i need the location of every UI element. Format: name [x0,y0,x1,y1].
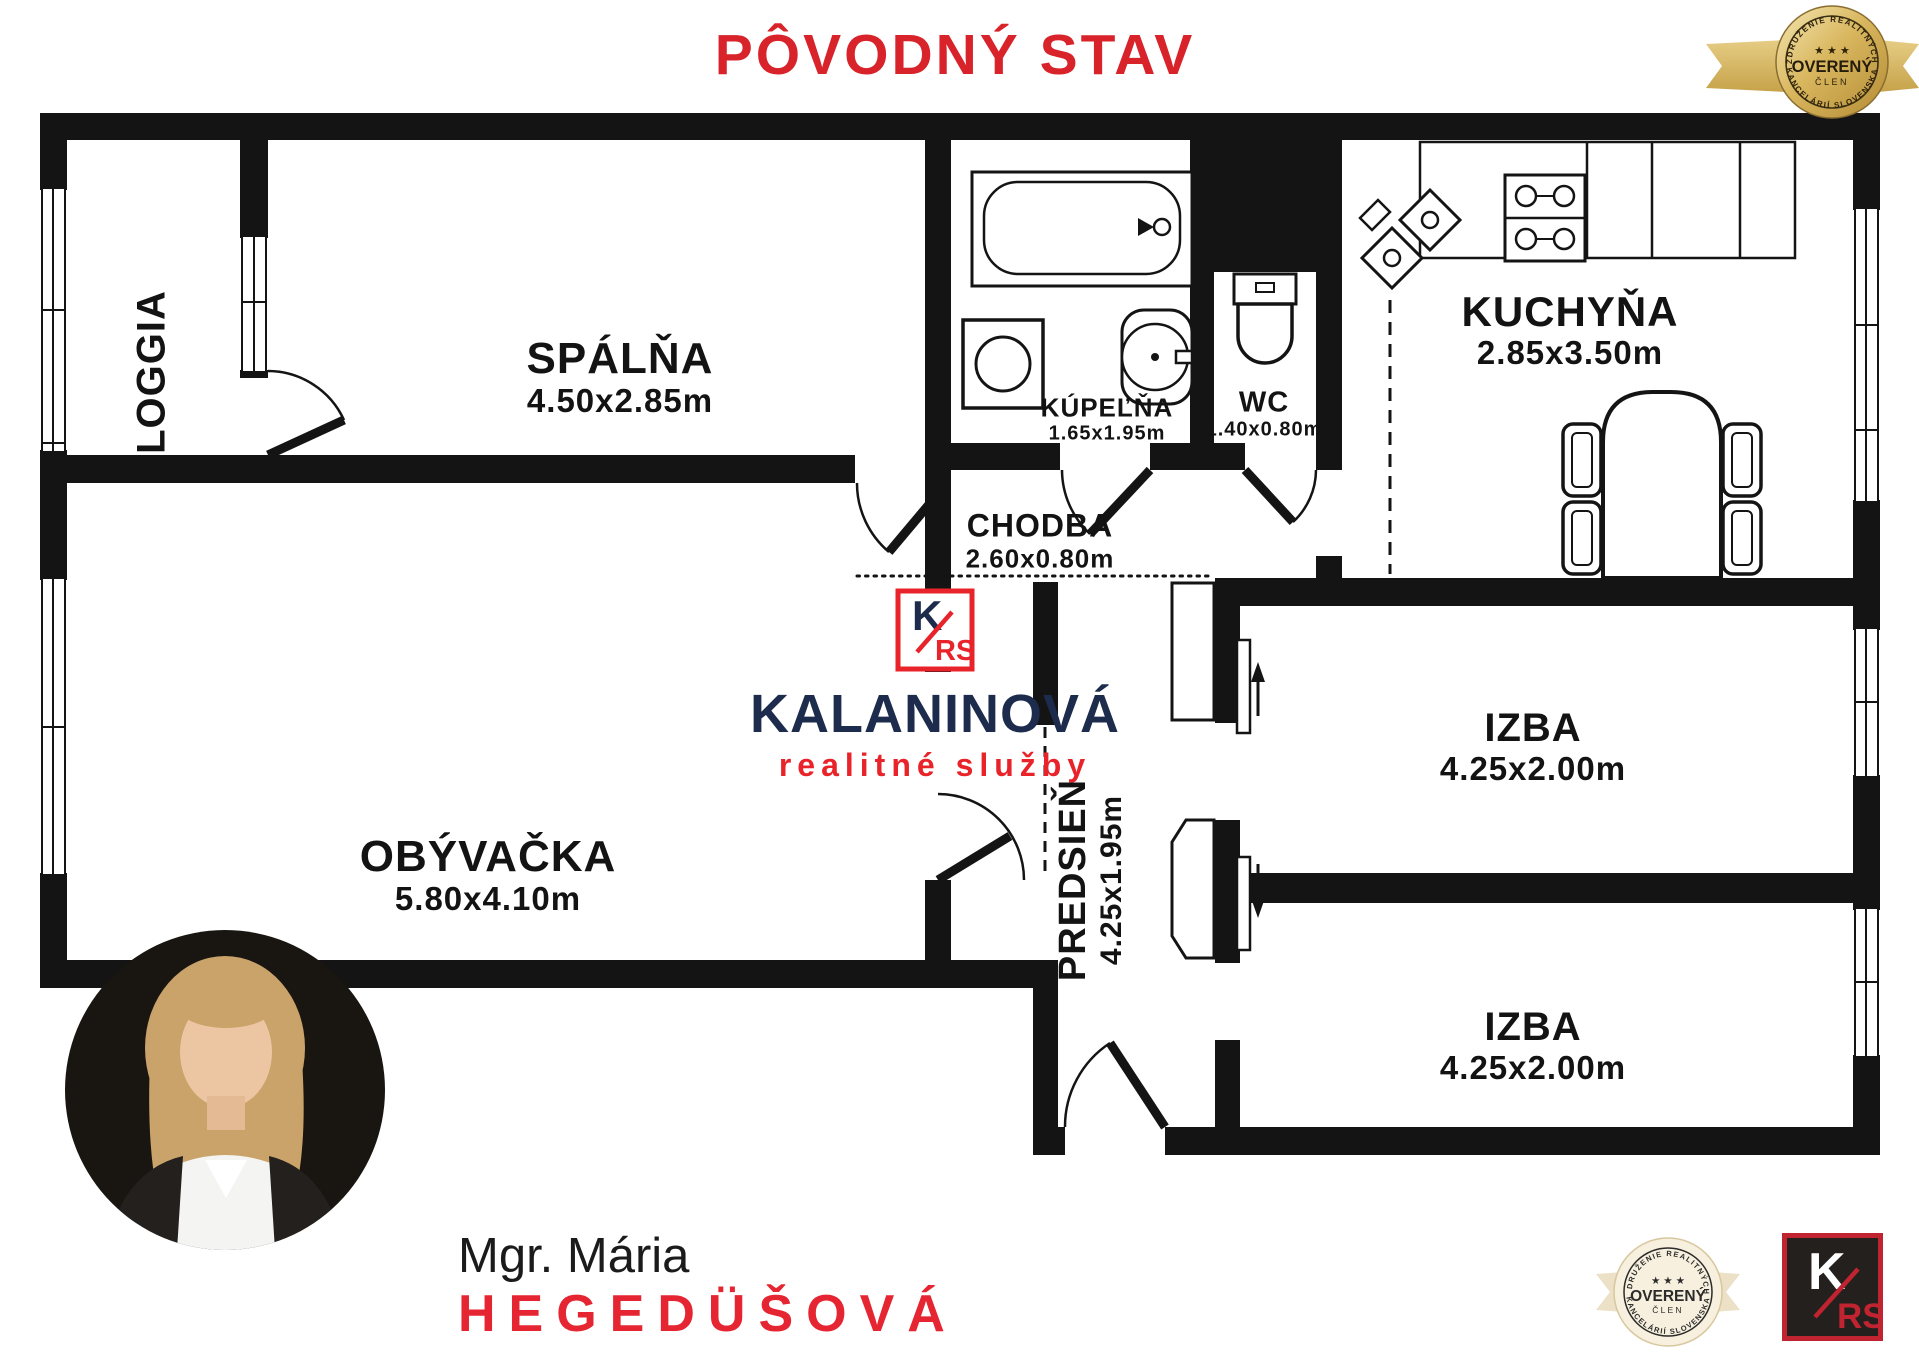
room-name: IZBA [1440,1005,1626,1050]
room-name: OBÝVAČKA [360,832,617,881]
stove [1505,175,1585,261]
agent-surname: HEGEDÜŠOVÁ [458,1284,958,1344]
room-dims: 5.80x4.10m [360,881,617,918]
room-dims: 1.40x0.80m [1206,419,1323,441]
window-izba-horna [1855,628,1878,777]
room-dims: 4.25x2.00m [1440,751,1626,788]
logo-rs-letters: RS [1837,1297,1883,1336]
brand-tagline: realitné služby [725,747,1145,784]
room-name: LOGGIA [130,290,175,454]
room-name: PREDSIEŇ [1052,779,1095,981]
bathroom-sink [1122,310,1192,404]
floorplan-page: PÔVODNÝ STAV [0,0,1919,1356]
badge-sub-text: ČLEN [1815,77,1849,87]
room-label-izba-horna: IZBA 4.25x2.00m [1440,706,1626,788]
dining-table [1603,392,1721,578]
room-dims: 2.60x0.80m [966,544,1115,573]
room-label-spalna: SPÁLŇA 4.50x2.85m [527,334,714,420]
window-kuchyna [1855,208,1878,502]
room-name: SPÁLŇA [527,334,714,383]
room-name: KÚPEĽŇA [1041,393,1174,422]
room-name: IZBA [1440,706,1626,751]
sliding-door-izba-dolna [1237,857,1265,950]
brand-name: KALANINOVÁ [725,683,1145,745]
verified-badge-footer: ZDRUŽENIE REALITNÝCH ★ ★ ★ OVERENÝ ČLEN … [1580,1226,1760,1356]
badge-main-text: OVERENÝ [1630,1287,1706,1305]
room-label-izba-dolna: IZBA 4.25x2.00m [1440,1005,1626,1087]
door-wc-chodba [1245,470,1316,522]
badge-stars: ★ ★ ★ [1651,1275,1686,1287]
door-obyvacka-predsien [938,794,1024,880]
room-dims: 4.25x1.95m [1094,779,1128,981]
chair [1723,502,1761,574]
room-label-kupelna: KÚPEĽŇA 1.65x1.95m [1041,393,1174,445]
room-dims: 1.65x1.95m [1041,422,1174,444]
washing-machine [963,320,1043,408]
door-loggia-spalna [268,371,344,455]
badge-sub-text: ČLEN [1652,1305,1683,1315]
room-name: WC [1206,387,1323,419]
predsien-wardrobe [1172,583,1214,958]
logo-k-letter: K [912,592,942,639]
chair [1563,502,1601,574]
room-label-wc: WC 1.40x0.80m [1206,387,1323,442]
logo-rs-letters: RS [935,635,975,667]
room-dims: 2.85x3.50m [1462,335,1679,372]
krs-logo-icon: K RS [895,588,975,672]
chair [1563,424,1601,496]
badge-main-text: OVERENÝ [1792,57,1873,76]
badge-ribbon-left [1706,40,1786,92]
room-name: KUCHYŇA [1462,288,1679,335]
window-izba-dolna [1855,908,1878,1057]
badge-stars: ★ ★ ★ [1814,45,1850,57]
chair [1723,424,1761,496]
room-dims: 4.25x2.00m [1440,1050,1626,1087]
bathtub [972,172,1192,286]
room-label-predsien: PREDSIEŇ 4.25x1.95m [1052,779,1128,981]
toilet [1234,274,1296,363]
room-label-loggia: LOGGIA [130,290,175,454]
window-obyvacka [42,578,65,875]
agent-photo [65,930,385,1250]
logo-k-letter: K [1808,1243,1846,1301]
room-label-obyvacka: OBÝVAČKA 5.80x4.10m [360,832,617,918]
room-dims: 4.50x2.85m [527,383,714,420]
window-loggia [42,188,65,452]
agent-title-name: Mgr. Mária [458,1228,689,1284]
door-entry [1065,1043,1165,1127]
kitchen-counter [1420,142,1795,258]
room-label-kuchyna: KUCHYŇA 2.85x3.50m [1462,288,1679,372]
room-name: CHODBA [966,509,1115,545]
krs-logo-footer: K RS [1782,1233,1883,1341]
dining-table-set [1563,392,1761,578]
brand-block: K RS KALANINOVÁ realitné služby [725,588,1145,784]
window-loggia-spalna [242,236,266,372]
room-label-chodba: CHODBA 2.60x0.80m [966,509,1115,574]
sliding-door-izba-horna [1237,640,1265,733]
verified-badge-top: ZDRUŽENIE REALITNÝCH ★ ★ ★ OVERENÝ ČLEN … [1690,0,1919,135]
